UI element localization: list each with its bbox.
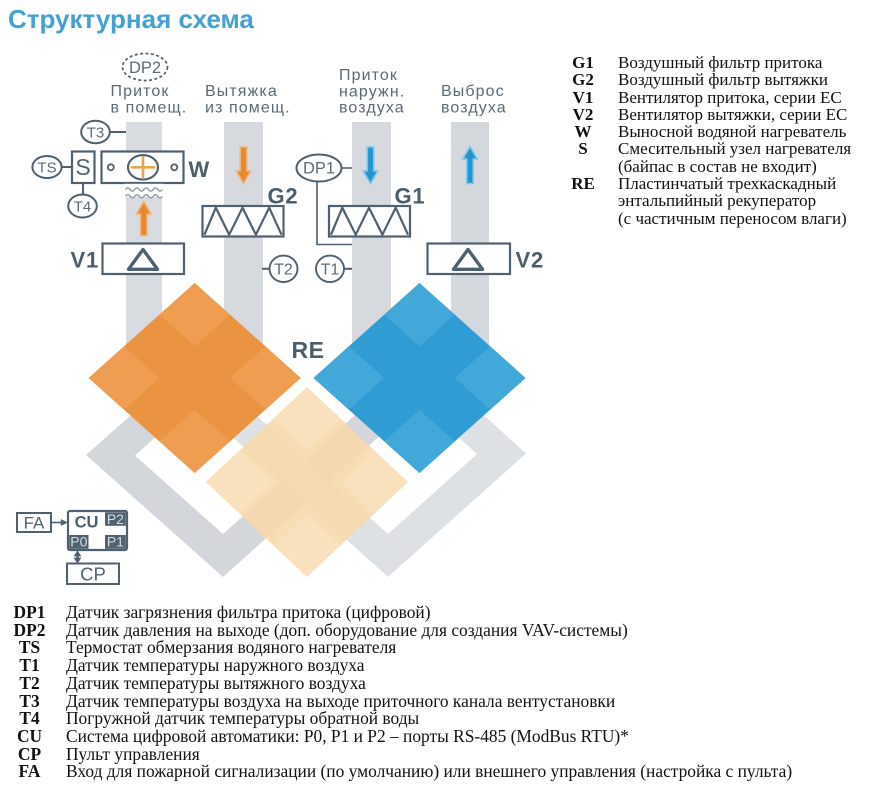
svg-text:T1: T1 xyxy=(321,261,340,278)
svg-text:G1: G1 xyxy=(395,184,426,209)
svg-text:RE: RE xyxy=(292,337,325,363)
svg-text:FA: FA xyxy=(24,514,45,533)
svg-text:P0: P0 xyxy=(70,534,87,550)
svg-text:T2: T2 xyxy=(274,261,293,278)
svg-text:P2: P2 xyxy=(107,511,124,527)
svg-text:W: W xyxy=(189,157,210,182)
svg-text:DP1: DP1 xyxy=(303,160,335,178)
svg-text:V1: V1 xyxy=(71,248,100,273)
svg-text:Выбросвоздуха: Выбросвоздуха xyxy=(441,83,507,116)
svg-text:G2: G2 xyxy=(268,184,299,209)
svg-text:T4: T4 xyxy=(74,198,92,215)
svg-text:TS: TS xyxy=(37,159,56,176)
svg-text:CP: CP xyxy=(80,564,106,585)
svg-text:V2: V2 xyxy=(516,248,545,273)
svg-text:CU: CU xyxy=(75,514,99,532)
svg-text:DP2: DP2 xyxy=(129,59,161,77)
svg-text:Притокв помещ.: Притокв помещ. xyxy=(111,83,188,116)
svg-text:S: S xyxy=(75,154,90,180)
svg-text:P1: P1 xyxy=(107,534,124,550)
svg-text:T3: T3 xyxy=(87,124,105,141)
svg-text:Вытяжкаиз помещ.: Вытяжкаиз помещ. xyxy=(205,83,291,116)
svg-text:Притокнаружн.воздуха: Притокнаружн.воздуха xyxy=(339,67,405,117)
